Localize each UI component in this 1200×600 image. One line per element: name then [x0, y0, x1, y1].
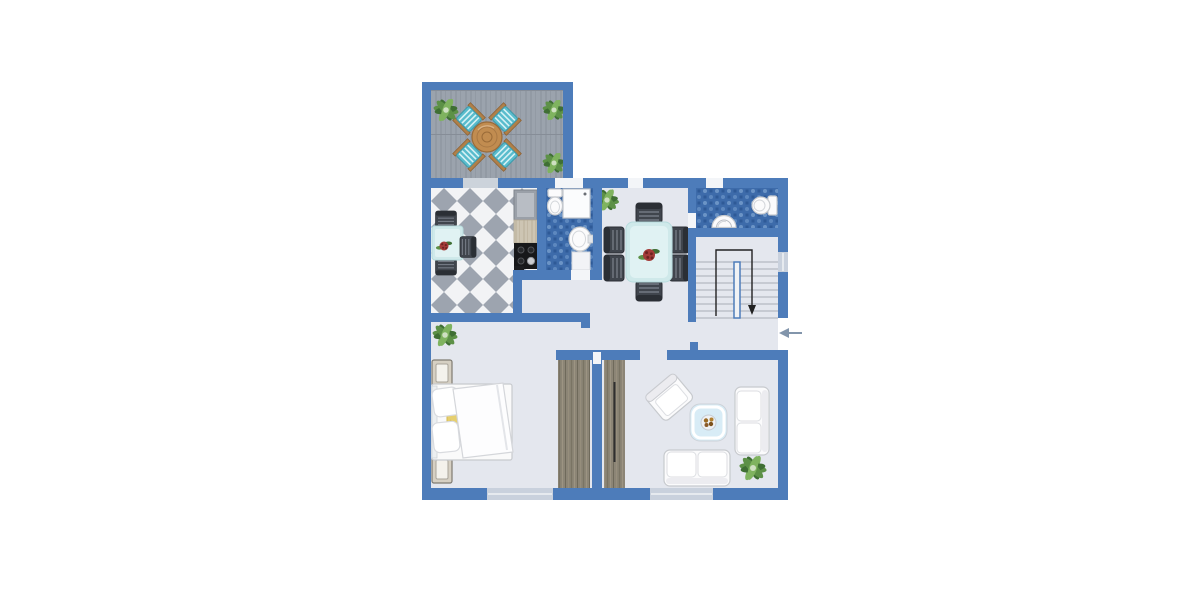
dining-window — [628, 178, 643, 188]
kitchen-counter — [514, 220, 537, 243]
wc-bottom-wall — [688, 228, 778, 237]
bathroom-window — [555, 178, 583, 188]
wc-door — [688, 213, 696, 228]
terrace — [431, 90, 566, 178]
hallway-wall-right — [667, 350, 778, 360]
sofa — [735, 387, 769, 455]
dining-chair — [636, 203, 662, 223]
toilet — [548, 189, 563, 215]
duvet — [453, 383, 513, 458]
wc-toilet — [752, 196, 777, 215]
kitchen-floor — [431, 270, 513, 313]
bedroom-living-wall — [592, 350, 602, 488]
wc-opening — [706, 178, 723, 188]
floor-plan-canvas — [0, 0, 1200, 600]
kitchen-chair — [436, 211, 457, 227]
double-bed — [431, 383, 513, 460]
bathroom-dining-wall — [593, 178, 602, 280]
terrace-top-wall — [422, 82, 573, 90]
terrace-right-wall — [563, 90, 573, 178]
kitchen-chair — [436, 259, 457, 275]
bathroom-door — [571, 270, 590, 280]
sofa — [664, 450, 730, 486]
coffee-table — [690, 404, 727, 441]
stove — [514, 243, 537, 271]
nightstand — [432, 360, 452, 386]
wardrobe-handle — [614, 382, 616, 462]
pillow — [432, 421, 461, 454]
left-wall — [422, 82, 431, 500]
wall-stub — [690, 342, 698, 350]
wardrobe — [558, 358, 590, 488]
shower — [563, 189, 590, 218]
kitchen-counter-block — [514, 190, 537, 271]
stairwell-window — [778, 252, 788, 272]
bottom-wall — [422, 488, 788, 500]
wc — [696, 188, 778, 228]
bedroom-window — [487, 488, 553, 500]
kitchen-corridor-wall — [513, 272, 522, 313]
dining-chair — [604, 227, 624, 253]
kitchen-chair — [460, 237, 476, 258]
wall-stub — [581, 322, 590, 328]
living-window — [650, 488, 713, 500]
kitchen-bottom-wall — [431, 313, 590, 322]
bath-mat — [572, 252, 590, 270]
dining-chair — [604, 255, 624, 281]
dining-chair — [636, 281, 662, 301]
bathroom — [546, 188, 593, 270]
stair-divider — [734, 262, 740, 318]
floor-plan-page — [0, 0, 1200, 600]
kitchen-bathroom-wall — [537, 188, 546, 272]
fruit-bowl — [701, 415, 716, 430]
dining-stairs-wall — [688, 188, 696, 322]
terrace-round-table — [472, 122, 502, 152]
wall-niche — [593, 352, 601, 364]
terrace-door — [463, 178, 498, 188]
refrigerator-top — [517, 193, 534, 217]
